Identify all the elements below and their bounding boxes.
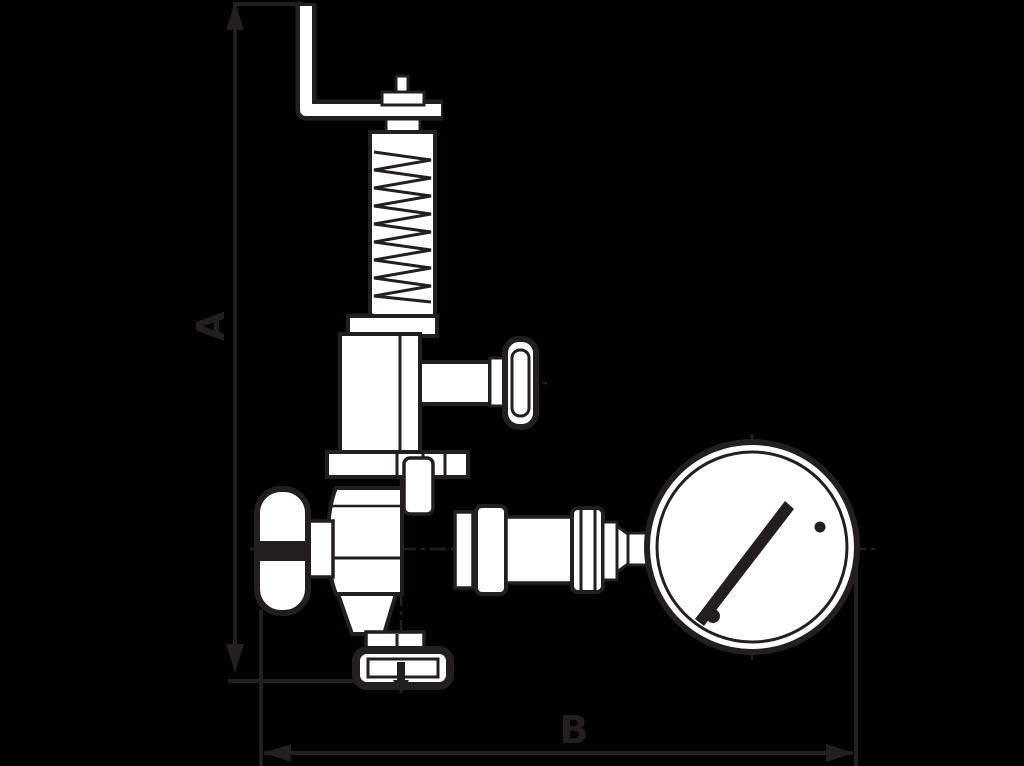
bonnet-body: [340, 334, 420, 452]
body-shell: [328, 488, 402, 594]
union-nut-2: [572, 508, 603, 592]
pressure-gauge: [647, 442, 857, 652]
outlet-flange: [356, 650, 450, 694]
side-knob: [505, 339, 536, 427]
gauge-dot-right: [815, 522, 826, 533]
pipe-taper: [617, 526, 628, 572]
gauge-dot-lower: [706, 609, 720, 623]
handwheel-hub: [260, 541, 305, 561]
spindle-locknut: [382, 92, 424, 105]
body-outlet-boss: [455, 512, 473, 588]
union-nut-1: [476, 506, 506, 594]
body-top-right-port: [404, 458, 433, 514]
side-port-pipe: [420, 362, 490, 404]
dim-b-label: B: [560, 708, 589, 752]
valve-dimensional-drawing: A B: [0, 0, 1024, 766]
pipe-nipple: [506, 517, 572, 583]
pipe-collar: [603, 522, 617, 580]
dim-a-label: A: [189, 311, 233, 341]
